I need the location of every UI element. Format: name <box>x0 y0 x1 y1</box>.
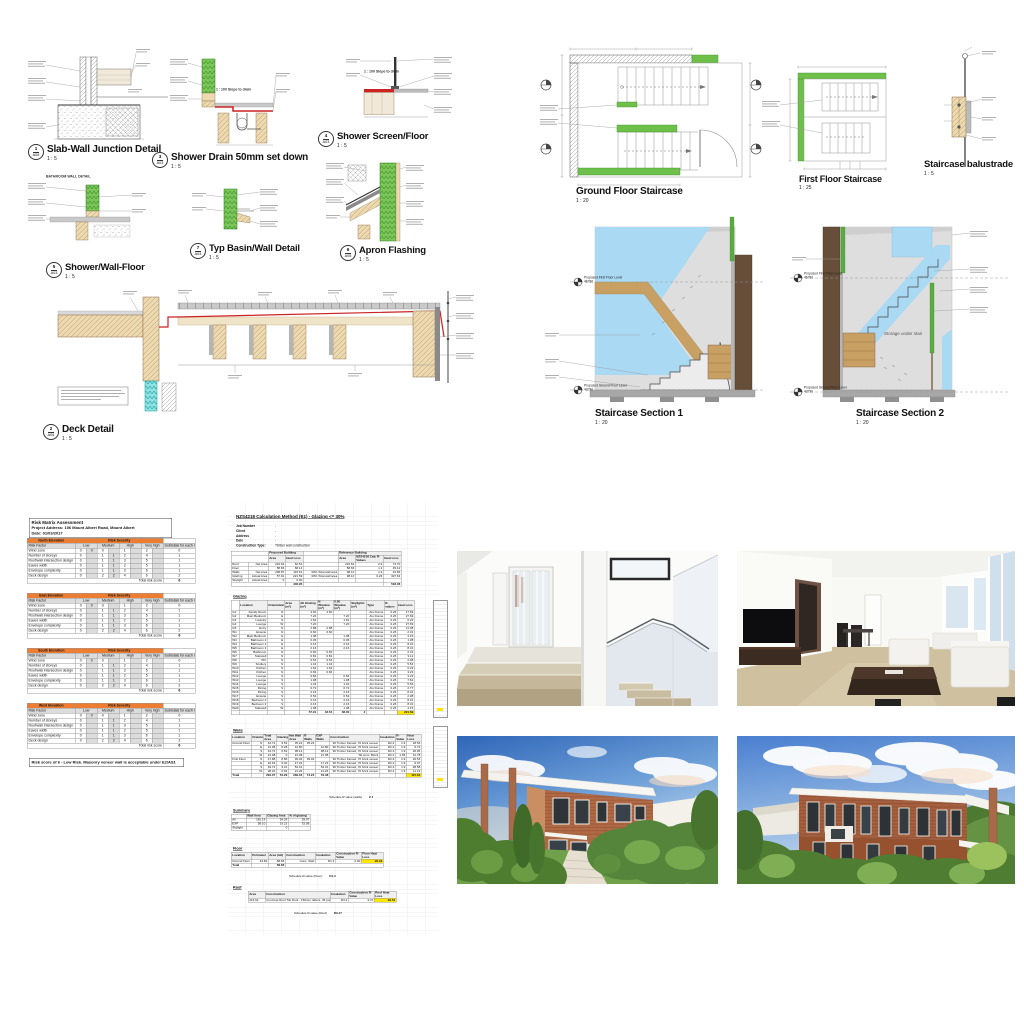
floor-table: LocationPerimeterArea (m2)ConstructionIn… <box>231 852 384 868</box>
detail-title-deck: 2A05 Deck Detail1 : 5 <box>43 424 114 442</box>
ground-floor-staircase-plan <box>540 48 761 187</box>
level-label-gfl: Proposed Ground Floor Level43790 <box>804 386 847 394</box>
render-interior-stairwell <box>457 551 718 706</box>
callout-icon: 4A03 <box>318 131 334 147</box>
staircase-balustrade-drawing <box>944 47 996 167</box>
slab-wall-junction-drawing <box>28 49 168 139</box>
detail-title-slab-wall: 1A05 Slab-Wall Junction Detail1 : 5 <box>28 144 161 162</box>
callout-icon: 3A03 <box>152 152 168 168</box>
first-floor-staircase-plan <box>762 66 886 171</box>
calc-title: NZS4218 Calculation Method (E1) - Glazin… <box>236 514 345 519</box>
floor-section-label: Floor <box>233 846 242 851</box>
detail-title-basin-wall: 7A03 Typ Basin/Wall Detail1 : 5 <box>190 243 300 261</box>
risk-score-note: Risk score of 6 - Low Risk. Masonry vene… <box>29 758 184 767</box>
risk-matrix-document: Risk Matrix Assessment Project Address: … <box>25 515 197 777</box>
deck-detail-drawing <box>58 290 474 411</box>
nzs4218-calc-sheet: NZS4218 Calculation Method (E1) - Glazin… <box>228 503 438 935</box>
drawing-collage-page: 1A05 Slab-Wall Junction Detail1 : 5 3A03… <box>0 0 1024 1024</box>
risk-table-south: South ElevationRisk SeverityRisk FactorL… <box>27 648 196 694</box>
level-label-ffl: Proposed First Floor Level46780 <box>584 276 622 284</box>
shower-screen-floor-drawing <box>346 57 452 117</box>
plan-title-first-floor: First Floor Staircase1 : 25 <box>799 174 882 191</box>
calc-info-block: Job Number- Client- Address- Date- Const… <box>236 524 310 548</box>
risk-table-north: North ElevationRisk SeverityRisk FactorL… <box>27 538 196 584</box>
schedule-floor-note: Schedule R-value (Floor)R1.3 <box>288 875 337 878</box>
section-title-2: Staircase Section 21 : 20 <box>856 408 944 426</box>
level-marker-icon <box>794 274 802 396</box>
typ-basin-wall-drawing <box>192 189 278 229</box>
callout-icon: 7A03 <box>190 243 206 259</box>
plan-title-balustrade: Staircase balustrade1 : 5 <box>924 159 1013 177</box>
callout-icon: 6A05 <box>340 245 356 261</box>
spreadsheet-edge-sliver <box>433 592 447 864</box>
render-exterior-rear <box>737 736 1015 884</box>
callout-icon: 1A05 <box>28 144 44 160</box>
render-exterior-front <box>457 736 718 884</box>
risk-table-east: East ElevationRisk SeverityRisk FactorLo… <box>27 593 196 639</box>
walls-table: LocationOrientationTotal AreaGlazingNet … <box>231 734 422 778</box>
glazing-summary-table: Wall AreaGlazing Area% of glazingAll181.… <box>231 814 311 831</box>
apron-flashing-drawing <box>326 163 424 241</box>
storage-note: Storage under stair <box>884 331 922 336</box>
risk-matrix-date: Date: 01/03/2017 <box>32 531 170 536</box>
callout-icon: 2A05 <box>43 424 59 440</box>
roof-table: AreaConstructionInsulationConstruction R… <box>248 891 397 903</box>
bathroom-wall-detail-label: BATHROOM WALL DETAIL <box>46 175 91 179</box>
risk-table-west: West ElevationRisk SeverityRisk FactorLo… <box>27 703 196 749</box>
shower-drain-drawing <box>170 59 290 145</box>
detail-title-shower-drain: 3A03 Shower Drain 50mm set down1 : 5 <box>152 152 308 170</box>
building-summary-table: Proposed BuildingReference BuildingAreaH… <box>231 551 402 587</box>
level-marker-icon <box>574 278 582 394</box>
callout-icon: 5A03 <box>46 262 62 278</box>
staircase-section-2-drawing <box>790 227 1010 402</box>
plan-title-ground-floor: Ground Floor Staircase1 : 20 <box>576 186 683 204</box>
detail-title-shower-wall-floor: 5A03 Shower/Wall-Floor1 : 5 <box>46 262 145 280</box>
staircase-section-1-drawing <box>545 217 765 402</box>
slope-note: 1 : 100 Slope to drain <box>364 70 399 74</box>
shower-wall-floor-drawing <box>28 183 146 240</box>
section-title-1: Staircase Section 11 : 20 <box>595 408 683 426</box>
slope-note: 1 : 100 Slope to drain <box>216 88 251 92</box>
schedule-walls-note: Schedule R value (walls)2.1 <box>328 796 374 799</box>
glazing-section-label: Glazing <box>233 594 247 599</box>
render-interior-living-room <box>737 551 1015 706</box>
risk-matrix-header: Risk Matrix Assessment Project Address: … <box>29 518 172 538</box>
detail-title-apron-flashing: 6A05 Apron Flashing1 : 5 <box>340 245 426 263</box>
detail-title-shower-screen: 4A03 Shower Screen/Floor1 : 5 <box>318 131 428 149</box>
walls-section-label: Walls <box>233 728 243 733</box>
summary-section-label: Summary <box>233 808 250 813</box>
level-label-gfl: Proposed Ground Floor Level43790 <box>584 384 627 392</box>
roof-section-label: Roof <box>233 885 242 890</box>
level-label-ffl: Proposed First Floor Level46780 <box>804 272 842 280</box>
schedule-roof-note: Schedule R-value (Roof)R3.47 <box>293 912 343 915</box>
glazing-table: LocationOrientationArea (m²)All Glazing … <box>231 600 415 715</box>
